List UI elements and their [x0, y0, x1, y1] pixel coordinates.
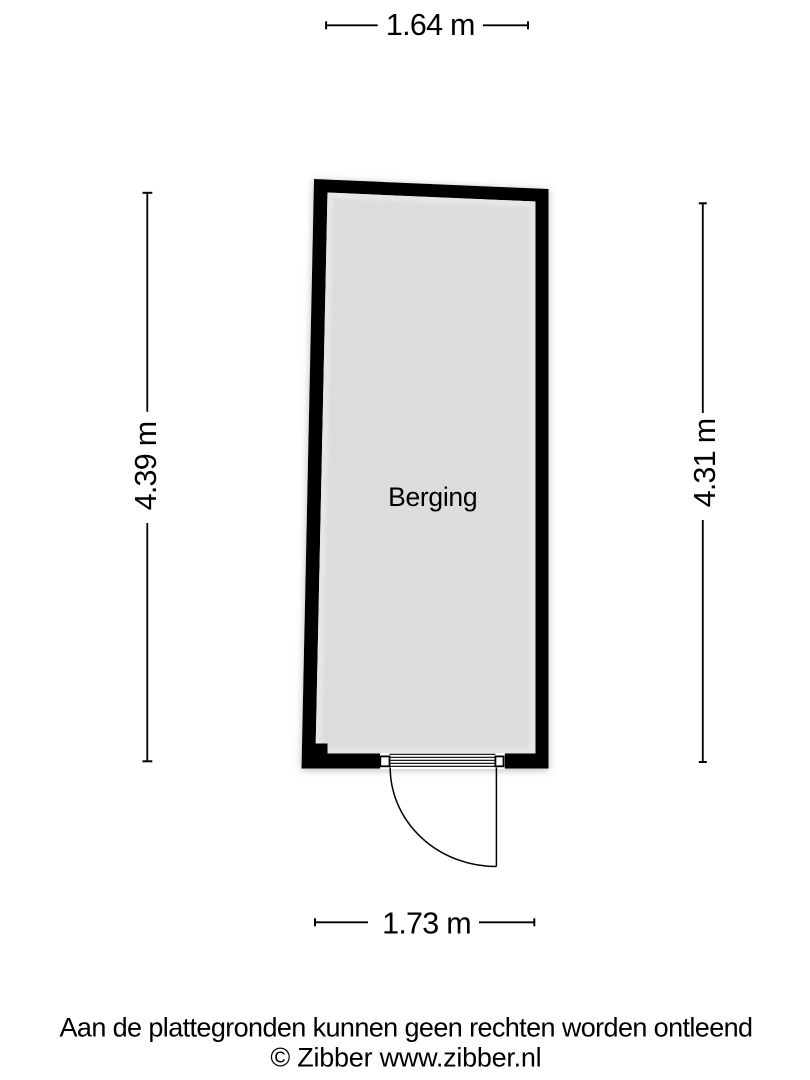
svg-text:Berging: Berging	[388, 482, 477, 512]
svg-text:Aan de plattegronden kunnen ge: Aan de plattegronden kunnen geen rechten…	[60, 1013, 753, 1043]
svg-text:4.31 m: 4.31 m	[688, 419, 722, 508]
svg-text:1.64 m: 1.64 m	[386, 8, 475, 42]
svg-text:© Zibber www.zibber.nl: © Zibber www.zibber.nl	[270, 1043, 541, 1073]
svg-text:4.39 m: 4.39 m	[129, 422, 163, 511]
svg-text:1.73 m: 1.73 m	[382, 906, 471, 940]
